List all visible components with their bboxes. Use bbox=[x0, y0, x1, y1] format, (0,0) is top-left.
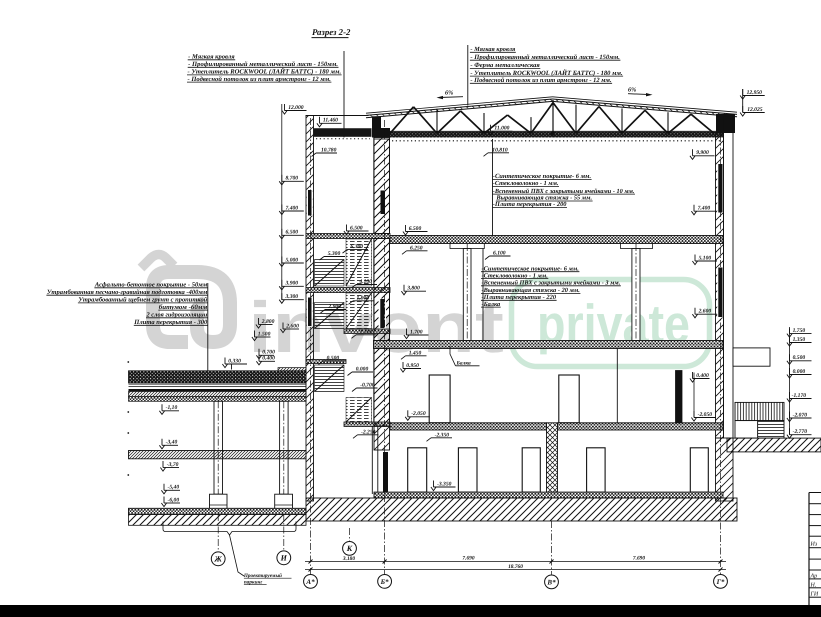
svg-text:-2.350: -2.350 bbox=[435, 432, 450, 438]
svg-text:-2.050: -2.050 bbox=[411, 411, 426, 417]
svg-text:-6,00: -6,00 bbox=[168, 497, 180, 503]
svg-text:0.400: 0.400 bbox=[262, 356, 275, 362]
svg-text:0.500: 0.500 bbox=[327, 356, 340, 362]
svg-text:6.300: 6.300 bbox=[351, 244, 364, 250]
svg-text:1.750: 1.750 bbox=[793, 328, 806, 334]
svg-text:7.400: 7.400 bbox=[286, 205, 299, 211]
svg-text:3.300: 3.300 bbox=[285, 294, 299, 300]
svg-text:6%: 6% bbox=[445, 90, 453, 97]
svg-text:битумом -60мм: битумом -60мм bbox=[159, 304, 208, 311]
svg-text:0.400: 0.400 bbox=[696, 373, 709, 379]
svg-text:1.450: 1.450 bbox=[409, 350, 422, 356]
svg-text:1.350: 1.350 bbox=[793, 337, 806, 343]
svg-text:Утрамбованная песчано-гравийна: Утрамбованная песчано-гравийная подготов… bbox=[47, 289, 208, 296]
svg-text:- Профилированный металлически: - Профилированный металлический лист - 1… bbox=[188, 61, 338, 68]
svg-text:10.810: 10.810 bbox=[492, 147, 508, 153]
svg-text:-Вспененный ПВХ с закрытыми яч: -Вспененный ПВХ с закрытыми ячейками - 3… bbox=[482, 280, 621, 287]
svg-text:-2.250: -2.250 bbox=[361, 429, 376, 435]
svg-text:5.300: 5.300 bbox=[328, 251, 341, 257]
svg-text:Разрез 2-2: Разрез 2-2 bbox=[312, 27, 351, 37]
svg-text:-3,70: -3,70 bbox=[167, 462, 179, 468]
svg-text:Из: Из bbox=[810, 542, 818, 548]
svg-text:1.700: 1.700 bbox=[410, 329, 423, 335]
svg-text:6%: 6% bbox=[628, 87, 636, 94]
svg-text:1.700: 1.700 bbox=[360, 329, 373, 335]
svg-text:-1.170: -1.170 bbox=[792, 393, 807, 399]
svg-text:6.500: 6.500 bbox=[286, 230, 299, 236]
svg-text:10.780: 10.780 bbox=[321, 148, 337, 154]
svg-text:В*: В* bbox=[546, 579, 556, 587]
svg-text:-2.050: -2.050 bbox=[698, 412, 713, 418]
svg-text:2 слоя гидроизоляции: 2 слоя гидроизоляции bbox=[145, 312, 207, 319]
svg-text:-2.070: -2.070 bbox=[793, 412, 808, 418]
svg-text:7.400: 7.400 bbox=[698, 206, 711, 212]
svg-text:6.500: 6.500 bbox=[350, 225, 363, 231]
svg-text:-2.770: -2.770 bbox=[793, 429, 808, 435]
svg-text:5.000: 5.000 bbox=[286, 257, 299, 263]
svg-text:2.600: 2.600 bbox=[698, 309, 712, 315]
svg-text:-0.700: -0.700 bbox=[360, 383, 375, 389]
svg-text:- Ферма металлическая: - Ферма металлическая bbox=[470, 62, 540, 69]
svg-text:- Профилированный металлически: - Профилированный металлический лист - 1… bbox=[470, 54, 620, 61]
svg-text:А*: А* bbox=[305, 578, 315, 586]
svg-text:2.900: 2.900 bbox=[327, 304, 341, 310]
svg-text:-3,40: -3,40 bbox=[166, 440, 178, 446]
svg-text:0.950: 0.950 bbox=[406, 363, 419, 369]
svg-text:-Стекловолокно - 1 мм.: -Стекловолокно - 1 мм. bbox=[493, 180, 559, 187]
svg-text:-3.350: -3.350 bbox=[437, 481, 452, 487]
svg-text:1.500: 1.500 bbox=[258, 331, 271, 337]
svg-text:12.025: 12.025 bbox=[747, 107, 763, 113]
svg-text:0.000: 0.000 bbox=[356, 367, 369, 373]
svg-text:-Балка: -Балка bbox=[482, 301, 501, 308]
svg-text:Ар: Ар bbox=[810, 573, 818, 579]
svg-text:ГИ: ГИ bbox=[810, 592, 819, 598]
svg-text:-5,40: -5,40 bbox=[168, 485, 180, 491]
svg-text:11.460: 11.460 bbox=[323, 118, 338, 124]
svg-text:- Мягкая кровля: - Мягкая кровля bbox=[188, 54, 235, 61]
svg-text:- Подвесной потолок из плит ар: - Подвесной потолок из плит армстронг - … bbox=[188, 76, 332, 83]
svg-text:Г*: Г* bbox=[716, 578, 725, 586]
svg-text:7.690: 7.690 bbox=[462, 556, 474, 562]
svg-text:-Плита перекрытия - 200: -Плита перекрытия - 200 bbox=[493, 201, 568, 208]
svg-text:Асфальто-бетонное покрытие - 5: Асфальто-бетонное покрытие - 50мм bbox=[94, 282, 208, 289]
svg-text:6.250: 6.250 bbox=[410, 245, 423, 251]
svg-text:7.690: 7.690 bbox=[633, 556, 645, 562]
svg-text:8.700: 8.700 bbox=[286, 176, 299, 182]
svg-text:1.900: 1.900 bbox=[357, 295, 370, 301]
svg-text:5.100: 5.100 bbox=[699, 255, 712, 261]
svg-text:Утрамбованный щебнем грунт с п: Утрамбованный щебнем грунт с пропиткой bbox=[78, 297, 207, 304]
svg-text:2.800: 2.800 bbox=[261, 319, 275, 325]
svg-text:18.760: 18.760 bbox=[508, 564, 523, 570]
svg-text:- Утеплитель ROCKWOOL (ЛАЙТ БА: - Утеплитель ROCKWOOL (ЛАЙТ БАТТС) - 180… bbox=[188, 68, 342, 76]
svg-text:И: И bbox=[280, 554, 288, 563]
svg-text:-1,10: -1,10 bbox=[166, 405, 178, 411]
svg-text:3.180: 3.180 bbox=[342, 556, 355, 562]
svg-text:- Утеплитель ROCKWOOL (ЛАЙТ БА: - Утеплитель ROCKWOOL (ЛАЙТ БАТТС) - 180… bbox=[470, 69, 623, 77]
svg-text:3.900: 3.900 bbox=[285, 281, 299, 287]
svg-text:4.100: 4.100 bbox=[358, 279, 372, 285]
svg-text:9.900: 9.900 bbox=[696, 150, 709, 156]
svg-text:0.000: 0.000 bbox=[793, 369, 806, 375]
svg-text:Н.: Н. bbox=[810, 582, 817, 588]
svg-text:-Стекловолокно - 1 мм.: -Стекловолокно - 1 мм. bbox=[482, 272, 549, 279]
svg-text:6.500: 6.500 bbox=[409, 226, 422, 232]
svg-text:К: К bbox=[346, 544, 353, 553]
svg-text:Плита перекрытия - 300: Плита перекрытия - 300 bbox=[133, 319, 208, 326]
svg-text:- Подвесной потолок из плит ар: - Подвесной потолок из плит армстронг - … bbox=[470, 77, 612, 84]
svg-text:2.600: 2.600 bbox=[285, 323, 299, 329]
svg-text:6.100: 6.100 bbox=[493, 251, 506, 257]
svg-text:0.330: 0.330 bbox=[228, 358, 241, 364]
svg-text:- Мягкая кровля: - Мягкая кровля bbox=[470, 46, 516, 53]
svg-text:Ж: Ж bbox=[214, 555, 223, 564]
svg-text:3.800: 3.800 bbox=[406, 286, 420, 292]
svg-text:Б*: Б* bbox=[380, 578, 389, 586]
svg-text:0.500: 0.500 bbox=[793, 355, 806, 361]
svg-text:12.000: 12.000 bbox=[288, 105, 304, 111]
svg-text:12.950: 12.950 bbox=[747, 90, 763, 96]
svg-text:11.000: 11.000 bbox=[494, 126, 509, 132]
